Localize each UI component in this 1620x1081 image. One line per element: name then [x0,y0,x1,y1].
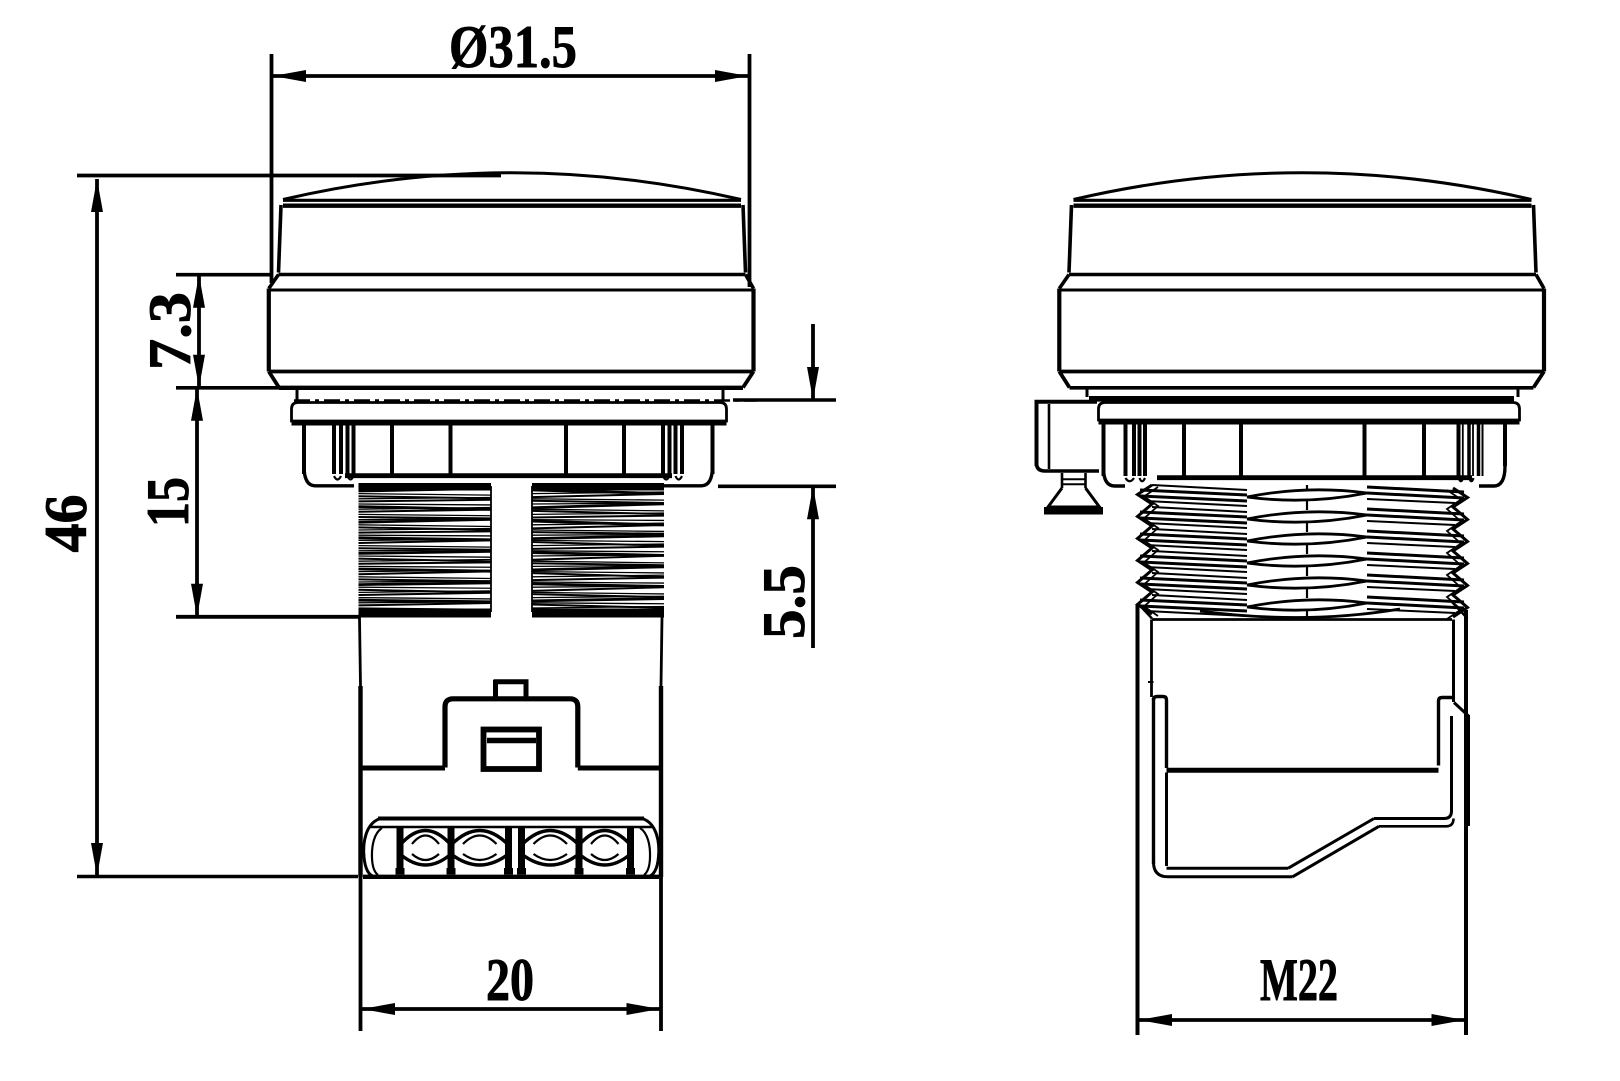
svg-text:M22: M22 [1260,947,1338,1013]
svg-text:5.5: 5.5 [751,565,817,639]
svg-text:15: 15 [135,477,201,527]
svg-text:20: 20 [486,947,534,1013]
svg-text:Ø31.5: Ø31.5 [449,14,577,80]
svg-text:46: 46 [33,495,99,553]
svg-text:7.3: 7.3 [137,292,203,370]
